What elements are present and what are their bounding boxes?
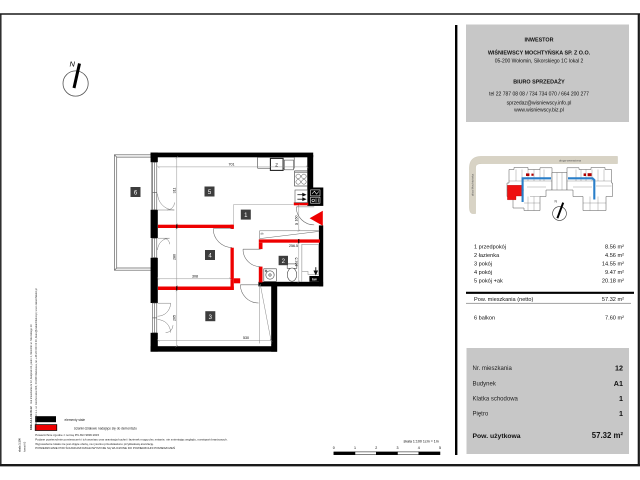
svg-text:WIŚNIEWSCY MOCHTYŃSKA SP. Z O.: WIŚNIEWSCY MOCHTYŃSKA SP. Z O.O. — [488, 49, 591, 57]
svg-text:skala 1:100 1cm = 1m: skala 1:100 1cm = 1m — [404, 439, 439, 443]
svg-text:14.55 m²: 14.55 m² — [602, 262, 624, 268]
svg-text:3: 3 — [397, 446, 399, 450]
svg-text:5 pokój +ak: 5 pokój +ak — [474, 279, 503, 285]
svg-text:05-200 Wołomin, Sikorskiego 1C: 05-200 Wołomin, Sikorskiego 1C lokal 2 — [495, 59, 584, 65]
svg-text:sprzedaz@wisniewscy.info.pl: sprzedaz@wisniewscy.info.pl — [507, 101, 572, 107]
svg-text:5: 5 — [439, 446, 441, 450]
svg-text:Budynek: Budynek — [473, 381, 497, 387]
svg-text:0: 0 — [333, 446, 335, 450]
svg-text:INWESTOR: INWESTOR — [525, 38, 554, 44]
svg-text:4 pokój: 4 pokój — [474, 270, 492, 276]
svg-text:2: 2 — [375, 446, 377, 450]
svg-text:1 przedpokój: 1 przedpokój — [474, 245, 506, 251]
svg-text:Pow. mieszkania (netto): Pow. mieszkania (netto) — [474, 297, 534, 303]
svg-text:ścianki działowe nadające się: ścianki działowe nadające się do demonta… — [74, 426, 137, 430]
svg-text:35: 35 — [295, 222, 299, 226]
svg-text:rzut mieszkania nr 12, budynek: rzut mieszkania nr 12, budynek A1, pietr… — [30, 324, 33, 404]
svg-text:57.32 m²: 57.32 m² — [602, 297, 624, 303]
svg-text:4: 4 — [418, 446, 420, 450]
svg-text:Z: Z — [275, 162, 278, 167]
svg-text:www.wisniewscy.biz.pl: www.wisniewscy.biz.pl — [514, 108, 564, 114]
svg-text:280: 280 — [172, 254, 176, 260]
svg-text:256.5: 256.5 — [289, 244, 298, 248]
svg-text:12: 12 — [615, 364, 623, 373]
svg-text:3 pokój: 3 pokój — [474, 262, 492, 268]
svg-text:7.60 m²: 7.60 m² — [605, 316, 624, 322]
svg-text:Pow. użytkowa: Pow. użytkowa — [473, 433, 521, 440]
svg-text:1: 1 — [619, 409, 623, 418]
svg-text:701: 701 — [229, 162, 235, 166]
svg-text:265: 265 — [172, 315, 176, 321]
svg-text:BIURO SPRZEDAŻY: BIURO SPRZEDAŻY — [513, 79, 565, 86]
svg-text:A1: A1 — [614, 379, 623, 388]
svg-text:530: 530 — [243, 336, 249, 340]
svg-text:308: 308 — [192, 274, 198, 278]
svg-text:1: 1 — [619, 394, 623, 403]
svg-text:Piętro: Piętro — [473, 411, 489, 417]
svg-text:droga wewnętrzna: droga wewnętrzna — [559, 159, 581, 163]
svg-text:2 łazienka: 2 łazienka — [474, 253, 500, 259]
svg-text:1: 1 — [354, 446, 356, 450]
svg-text:311: 311 — [172, 188, 176, 194]
svg-text:4.56 m²: 4.56 m² — [605, 253, 624, 259]
svg-text:db: db — [261, 232, 265, 236]
svg-text:kw: kw — [312, 278, 317, 282]
svg-text:Nr. mieszkania: Nr. mieszkania — [473, 366, 513, 372]
svg-text:8.56 m²: 8.56 m² — [605, 245, 624, 251]
svg-text:skala 1:100: skala 1:100 — [18, 438, 22, 452]
svg-text:N: N — [70, 60, 76, 69]
svg-text:Klatka schodowa: Klatka schodowa — [473, 397, 519, 403]
svg-text:20.18 m²: 20.18 m² — [602, 279, 624, 285]
svg-text:KRE.A1.1.02.W.12: KRE.A1.1.02.W.12 — [29, 406, 33, 430]
svg-text:ulica Mochtyńska: ulica Mochtyńska — [470, 174, 474, 197]
svg-text:elementy stałe: elementy stałe — [65, 418, 86, 422]
svg-text:6 balkon: 6 balkon — [474, 316, 495, 322]
svg-text:9.47 m²: 9.47 m² — [605, 270, 624, 276]
svg-text:ZAK Architekci s.c. ul. Grocho: ZAK Architekci s.c. ul. Grochowska 21/3,… — [35, 288, 38, 430]
svg-text:160: 160 — [294, 216, 298, 222]
svg-text:162.5: 162.5 — [294, 258, 298, 267]
svg-text:57.32 m²: 57.32 m² — [592, 431, 624, 440]
svg-text:tel 22 787 08 08 / 734 734 070: tel 22 787 08 08 / 734 734 070 / 664 200… — [489, 92, 589, 98]
svg-text:format A3: format A3 — [24, 441, 27, 452]
svg-text:POWIERZCHNIE POD ŚCIANKAMI DZI: POWIERZCHNIE POD ŚCIANKAMI DZIAŁOWYMI NI… — [35, 445, 175, 450]
